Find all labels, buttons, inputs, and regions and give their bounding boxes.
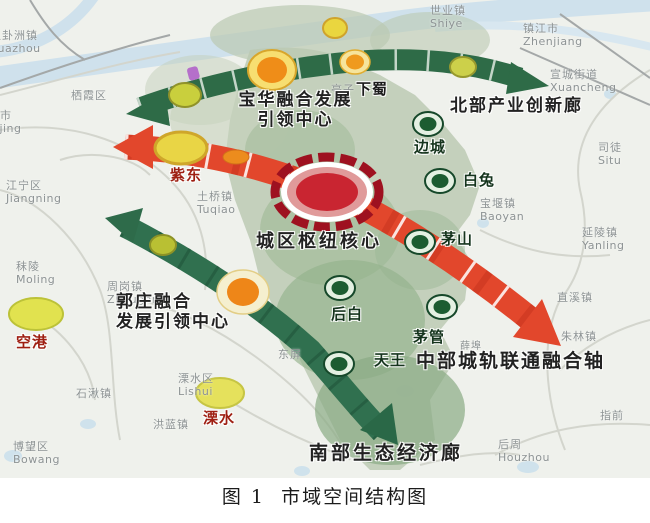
town-label-biancheng: 边城 [414, 139, 446, 156]
node-olive-northeast [450, 57, 476, 77]
basemap-label-guazhou: 八卦洲镇 guazhou [0, 30, 41, 55]
node-yellow-konggang [9, 298, 63, 330]
basemap-label-houzhou: 后周 Houzhou [498, 439, 550, 464]
node-orange-baohua [248, 50, 296, 90]
basemap-label-zhenjiang: 镇江市 Zhenjiang [523, 23, 583, 48]
node-olive-south-corridor [150, 235, 176, 255]
node-orange-xiashu [340, 50, 370, 74]
node-olive-northwest [169, 83, 201, 107]
basemap-label-shiye: 世业镇 Shiye [430, 5, 466, 30]
basemap-label-moling: 秣陵 Moling [16, 261, 55, 286]
node-green-tianwang [324, 352, 354, 376]
central-axis-label: 中部城轨联通融合轴 [416, 351, 605, 373]
basemap-label-honglan: 洪蓝镇 [153, 419, 189, 432]
town-label-maoshan: 茅山 [441, 231, 473, 248]
town-label-zidong: 紫东 [170, 167, 202, 184]
basemap-label-xuancheng: 宣城街道 Xuancheng [550, 69, 616, 94]
town-label-maoguan: 茅管 [413, 329, 445, 346]
town-label-houbai: 后白 [331, 306, 363, 323]
guozhuang-center-label: 郭庄融合 发展引领中心 [116, 293, 230, 332]
structure-figure: 八卦洲镇 guazhou 栖霞区 南京市 Nanjing 江宁区 Jiangni… [0, 0, 650, 523]
baohua-center-label: 宝华融合发展 引领中心 [213, 91, 378, 130]
basemap-label-situ: 司徒 Situ [598, 142, 622, 167]
node-yellow-shiye [323, 18, 347, 38]
south-corridor-label: 南部生态经济廊 [309, 443, 463, 465]
town-label-konggang: 空港 [16, 334, 48, 351]
basemap-label-bowang: 博望区 Bowang [13, 441, 60, 466]
town-label-lishui: 溧水 [203, 410, 235, 427]
node-green-houbai [325, 276, 355, 300]
basemap-label-lishui-district: 溧水区 Lishui [178, 373, 214, 398]
basemap-label-zhiqian: 指前 [600, 410, 624, 423]
city-structure-map: 八卦洲镇 guazhou 栖霞区 南京市 Nanjing 江宁区 Jiangni… [0, 0, 650, 478]
basemap-label-nanjing: 南京市 Nanjing [0, 110, 22, 135]
basemap-label-tuqiao: 土桥镇 Tuqiao [197, 191, 236, 216]
node-yellow-zidong [155, 132, 207, 164]
figure-caption: 图 1 市域空间结构图 [0, 482, 650, 509]
basemap-label-zhixi: 直溪镇 [557, 292, 593, 305]
node-green-baitu [425, 169, 455, 193]
node-green-biancheng [413, 112, 443, 136]
basemap-label-jiangning: 江宁区 Jiangning [6, 180, 61, 205]
node-green-maoshan [405, 230, 435, 254]
basemap-label-yanling: 延陵镇 Yanling [582, 227, 624, 252]
basemap-label-qixia: 栖霞区 [71, 90, 107, 103]
hub-label: 城区枢纽核心 [256, 232, 382, 253]
node-green-maoguan [427, 295, 457, 319]
town-label-baitu: 白兔 [463, 172, 495, 189]
north-corridor-label: 北部产业创新廊 [450, 97, 583, 117]
basemap-label-baoyan: 宝堰镇 Baoyan [480, 198, 524, 223]
node-orange-on-axis [223, 150, 249, 164]
basemap-label-shiqiu: 石湫镇 [76, 388, 112, 401]
town-label-tianwang: 天王 [374, 352, 406, 369]
basemap-label-dongping: 东屏 [278, 349, 302, 362]
basemap-label-zhulin: 朱林镇 [561, 331, 597, 344]
